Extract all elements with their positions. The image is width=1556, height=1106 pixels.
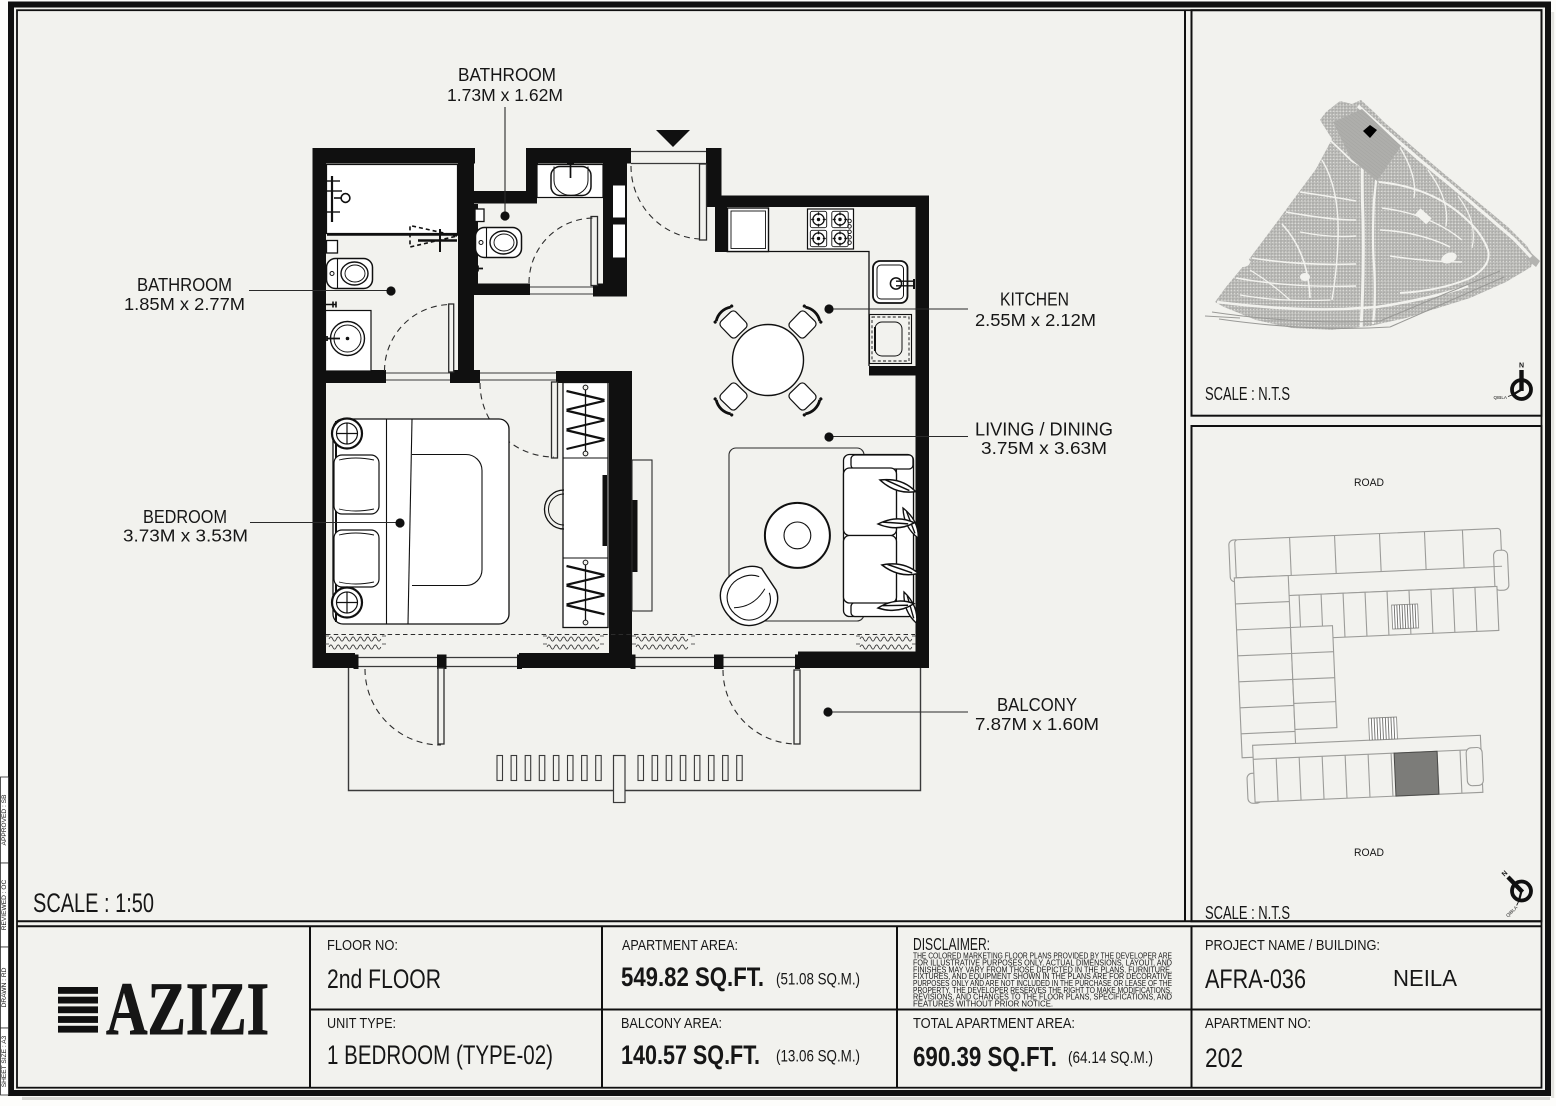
svg-text:DRAWN : RD: DRAWN : RD	[1, 967, 8, 1007]
svg-text:QIBLA: QIBLA	[1493, 395, 1507, 400]
svg-text:1.85M x 2.77M: 1.85M x 2.77M	[124, 294, 245, 314]
svg-text:3.75M x 3.63M: 3.75M x 3.63M	[981, 438, 1107, 458]
svg-text:7.87M x 1.60M: 7.87M x 1.60M	[975, 714, 1099, 734]
svg-text:SCALE : 1:50: SCALE : 1:50	[33, 888, 154, 918]
svg-text:APARTMENT NO:: APARTMENT NO:	[1205, 1015, 1311, 1032]
svg-text:LIVING / DINING: LIVING / DINING	[975, 420, 1113, 440]
svg-text:BALCONY AREA:: BALCONY AREA:	[621, 1015, 722, 1032]
svg-text:(64.14 SQ.M.): (64.14 SQ.M.)	[1068, 1048, 1153, 1067]
svg-text:BATHROOM: BATHROOM	[137, 275, 232, 295]
svg-text:SCALE : N.T.S: SCALE : N.T.S	[1205, 383, 1290, 404]
svg-text:NEILA: NEILA	[1393, 965, 1458, 991]
svg-text:(51.08 SQ.M.): (51.08 SQ.M.)	[776, 970, 860, 989]
svg-text:202: 202	[1205, 1043, 1243, 1073]
svg-text:ROAD: ROAD	[1354, 847, 1384, 859]
svg-text:UNIT TYPE:: UNIT TYPE:	[327, 1015, 396, 1032]
svg-text:SHEET SIZE : A3: SHEET SIZE : A3	[1, 1035, 8, 1087]
svg-text:ROAD: ROAD	[1354, 477, 1384, 489]
svg-text:AZIZI: AZIZI	[106, 968, 269, 1051]
svg-text:BALCONY: BALCONY	[997, 695, 1077, 715]
svg-text:APPROVED : SB: APPROVED : SB	[1, 794, 8, 846]
svg-text:BATHROOM: BATHROOM	[458, 65, 556, 85]
svg-text:SCALE : N.T.S: SCALE : N.T.S	[1205, 902, 1290, 923]
svg-text:TOTAL APARTMENT AREA:: TOTAL APARTMENT AREA:	[913, 1015, 1075, 1032]
svg-text:PROJECT NAME / BUILDING:: PROJECT NAME / BUILDING:	[1205, 937, 1380, 954]
svg-text:KITCHEN: KITCHEN	[1000, 290, 1069, 310]
svg-text:N: N	[1519, 363, 1524, 370]
svg-text:FLOOR NO:: FLOOR NO:	[327, 937, 398, 954]
svg-text:140.57 SQ.FT.: 140.57 SQ.FT.	[621, 1040, 760, 1070]
svg-text:1 BEDROOM (TYPE-02): 1 BEDROOM (TYPE-02)	[327, 1040, 553, 1070]
svg-text:1.73M x 1.62M: 1.73M x 1.62M	[447, 85, 563, 105]
svg-text:(13.06 SQ.M.): (13.06 SQ.M.)	[776, 1047, 860, 1066]
svg-text:549.82 SQ.FT.: 549.82 SQ.FT.	[621, 962, 764, 992]
svg-text:AFRA-036: AFRA-036	[1205, 964, 1306, 994]
svg-text:APARTMENT AREA:: APARTMENT AREA:	[622, 937, 738, 954]
svg-text:FEATURES WITHOUT PRIOR NOTICE.: FEATURES WITHOUT PRIOR NOTICE.	[913, 1000, 1053, 1009]
svg-text:3.73M x 3.53M: 3.73M x 3.53M	[123, 526, 248, 546]
svg-text:2nd FLOOR: 2nd FLOOR	[327, 964, 441, 994]
svg-text:690.39 SQ.FT.: 690.39 SQ.FT.	[913, 1041, 1057, 1072]
svg-text:REVIEWED : OC: REVIEWED : OC	[1, 879, 8, 930]
svg-text:2.55M x 2.12M: 2.55M x 2.12M	[975, 310, 1096, 330]
svg-text:BEDROOM: BEDROOM	[143, 507, 227, 527]
